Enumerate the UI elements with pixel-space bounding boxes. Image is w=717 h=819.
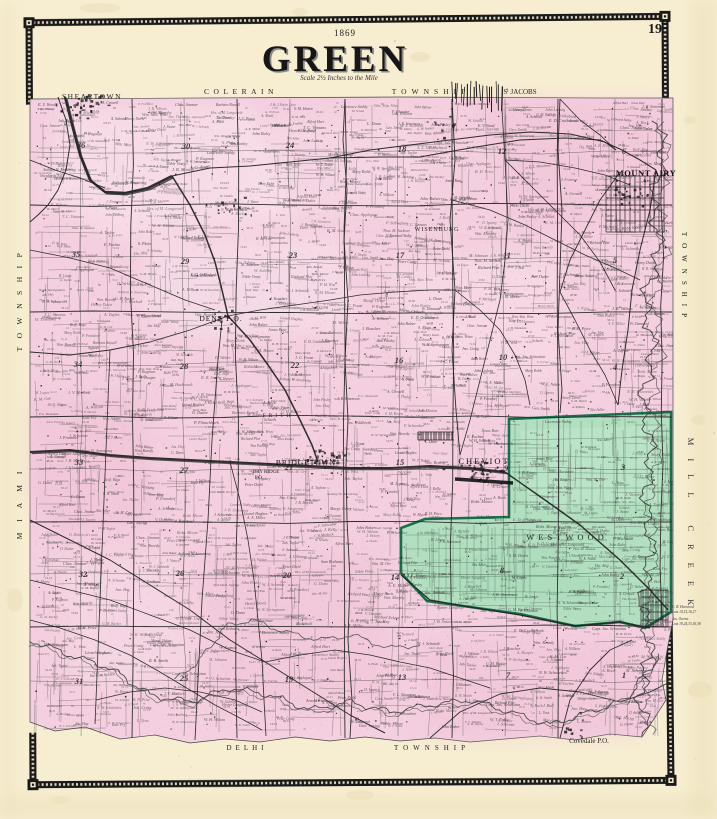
svg-text:54.91: 54.91 [109,273,116,277]
svg-text:91.41: 91.41 [364,451,372,455]
svg-text:54.91: 54.91 [379,621,386,624]
svg-text:L. Dunn: L. Dunn [411,482,426,487]
svg-text:170: 170 [462,498,467,501]
svg-text:Leonard Staby: Leonard Staby [489,362,508,366]
svg-text:28.80: 28.80 [437,223,444,226]
svg-text:58.10: 58.10 [162,238,169,241]
svg-text:Peter Craig: Peter Craig [397,260,417,264]
svg-text:29.13: 29.13 [539,382,546,385]
svg-text:160: 160 [338,411,343,415]
svg-text:Peter Diehl: Peter Diehl [282,565,301,569]
svg-text:95.14: 95.14 [498,390,506,394]
svg-text:25.14: 25.14 [262,289,269,292]
svg-text:160: 160 [397,635,402,638]
svg-text:Peter Craig: Peter Craig [109,265,129,269]
svg-text:Peter Diehl: Peter Diehl [342,177,357,181]
svg-text:Nible Vinny: Nible Vinny [241,274,261,279]
svg-text:19.08: 19.08 [454,160,461,163]
svg-text:25.14: 25.14 [662,312,669,316]
svg-text:160: 160 [217,119,222,123]
svg-text:74.62: 74.62 [71,611,78,615]
svg-text:80: 80 [41,639,45,643]
svg-text:R. B. Smith: R. B. Smith [102,492,119,496]
svg-text:170: 170 [439,323,444,326]
svg-text:Wm. Beardy: Wm. Beardy [390,431,410,436]
svg-text:Jonas Bute: Jonas Bute [481,428,499,433]
svg-text:G. Dano: G. Dano [231,610,245,615]
svg-text:Nta Adler: Nta Adler [504,635,518,639]
svg-text:18.19: 18.19 [213,584,220,587]
svg-text:66.31: 66.31 [363,338,370,341]
svg-text:V. Osnama: V. Osnama [365,612,381,616]
svg-text:47.50: 47.50 [40,112,47,115]
svg-text:Nta Adler: Nta Adler [471,563,487,567]
svg-text:44.10: 44.10 [323,636,330,640]
svg-text:J. B. Simonson: J. B. Simonson [224,507,249,513]
svg-text:31.75: 31.75 [565,704,572,708]
svg-text:Richard Plar: Richard Plar [240,437,261,441]
svg-text:74.62: 74.62 [384,475,391,478]
svg-text:103.25: 103.25 [103,122,111,125]
svg-text:54.91: 54.91 [45,668,53,672]
svg-text:27: 27 [179,465,189,475]
svg-text:160: 160 [479,677,484,680]
svg-text:19.08: 19.08 [172,693,179,696]
svg-text:18.19: 18.19 [317,312,325,316]
svg-text:23: 23 [288,250,298,260]
svg-text:74.62: 74.62 [565,491,573,495]
svg-text:29: 29 [180,256,190,266]
svg-text:Wm. Adams: Wm. Adams [103,417,121,421]
svg-text:E. D. Cruikshank: E. D. Cruikshank [513,628,544,633]
svg-text:G. M. Barker: G. M. Barker [508,608,529,612]
svg-text:COLERAIN: COLERAIN [204,87,278,96]
svg-text:120: 120 [627,588,632,591]
svg-text:29.13: 29.13 [141,687,148,690]
svg-text:34.30: 34.30 [354,658,362,662]
svg-text:103.25: 103.25 [488,235,497,239]
svg-text:74.62: 74.62 [387,530,395,534]
svg-text:63: 63 [292,377,296,381]
svg-text:58.10: 58.10 [358,643,365,646]
svg-text:F. L. Showman: F. L. Showman [357,394,378,398]
svg-text:S. Plain: S. Plain [628,136,639,140]
svg-text:W. Timmand: W. Timmand [173,518,195,524]
svg-text:19.08: 19.08 [204,308,211,312]
svg-text:J. Victory: J. Victory [454,528,470,534]
svg-text:L. Voss: L. Voss [538,711,550,715]
svg-text:103.25: 103.25 [400,482,409,486]
svg-text:84: 84 [151,148,155,152]
svg-text:29.13: 29.13 [126,132,133,135]
svg-text:Nta Adler: Nta Adler [223,567,237,571]
svg-text:Jos. Wildbreth: Jos. Wildbreth [128,176,146,180]
svg-text:D. Weber: D. Weber [628,710,645,715]
svg-text:18.19: 18.19 [329,424,337,428]
svg-text:Peter Diehl: Peter Diehl [432,451,448,456]
svg-text:58.10: 58.10 [385,263,392,267]
svg-text:E. D. Cruikshank: E. D. Cruikshank [410,315,439,320]
svg-text:58.10: 58.10 [95,558,102,561]
svg-text:160: 160 [503,685,508,689]
svg-text:47.50: 47.50 [425,563,432,566]
svg-text:W. Cordes: W. Cordes [212,485,226,489]
svg-text:54.91: 54.91 [92,479,99,483]
svg-text:F. L. Showman: F. L. Showman [38,412,59,416]
svg-text:80: 80 [589,505,593,509]
svg-text:Lionel Hughes: Lionel Hughes [327,656,347,660]
svg-text:28.80: 28.80 [368,600,376,604]
svg-text:S. M. Hearn: S. M. Hearn [46,360,63,364]
svg-text:A. Taylor: A. Taylor [59,278,73,282]
svg-text:Chas. Jimmar: Chas. Jimmar [467,324,488,328]
svg-text:38.51: 38.51 [76,714,83,718]
svg-text:P. M. Wist: P. M. Wist [340,469,359,474]
svg-text:J. Victory: J. Victory [205,425,217,429]
svg-text:160: 160 [331,564,336,568]
svg-text:John Mortimer: John Mortimer [202,301,221,305]
svg-text:Schash: Schash [532,339,543,343]
svg-text:29.13: 29.13 [407,282,414,286]
svg-text:120: 120 [467,227,472,231]
svg-text:WESTWOOD: WESTWOOD [526,532,608,542]
svg-text:120: 120 [416,318,421,322]
svg-text:S. Plain: S. Plain [576,691,589,696]
svg-text:25.14: 25.14 [381,337,389,341]
svg-text:44.10: 44.10 [509,416,517,420]
svg-text:J. Ulihman: J. Ulihman [151,613,165,617]
svg-text:103.25: 103.25 [544,291,553,295]
svg-text:W. J. Schmidt: W. J. Schmidt [149,565,170,569]
svg-text:Tim Pardey: Tim Pardey [622,597,638,601]
svg-text:N. W. Schworties: N. W. Schworties [626,390,654,394]
svg-text:47.50: 47.50 [202,631,209,635]
svg-text:P.O.: P.O. [255,476,263,481]
svg-text:40: 40 [375,343,379,347]
svg-text:25.14: 25.14 [532,564,539,568]
svg-text:1: 1 [622,670,626,680]
svg-text:19: 19 [648,22,662,37]
svg-text:74.62: 74.62 [633,196,640,199]
svg-text:A. Taylor: A. Taylor [47,591,62,595]
svg-text:Hrs. of M. Longworth: Hrs. of M. Longworth [146,206,184,211]
svg-text:M. Lopes: M. Lopes [456,263,469,267]
svg-text:J. C. Foust: J. C. Foust [603,559,620,564]
svg-text:80: 80 [283,107,287,111]
svg-text:38.51: 38.51 [237,692,244,696]
svg-text:19.08: 19.08 [581,513,589,517]
svg-text:18.19: 18.19 [633,476,640,479]
svg-text:R. B. Smith: R. B. Smith [56,244,71,249]
svg-text:J. V. Morlock: J. V. Morlock [139,568,159,573]
svg-text:12: 12 [232,417,236,421]
svg-text:E. V. Wood: E. V. Wood [239,118,255,122]
svg-text:28.80: 28.80 [334,147,341,151]
svg-text:John Raley: John Raley [252,131,270,136]
svg-text:D. Weber: D. Weber [655,409,672,414]
svg-text:58.10: 58.10 [591,176,598,179]
svg-text:28.80: 28.80 [314,360,322,364]
svg-text:J. B. Simonson: J. B. Simonson [272,388,291,392]
svg-text:48.44: 48.44 [57,459,64,463]
svg-text:John Balser: John Balser [155,365,172,369]
svg-text:W. Schilby: W. Schilby [252,645,266,649]
svg-text:Jonas Bute: Jonas Bute [413,330,428,334]
svg-text:F. Schwaber: F. Schwaber [92,187,112,191]
svg-text:A. Hopke: A. Hopke [633,374,646,378]
svg-text:48.44: 48.44 [199,369,207,373]
svg-text:R. B. Smith: R. B. Smith [454,694,472,698]
svg-text:J. B. Morton: J. B. Morton [432,677,448,681]
svg-text:47.50: 47.50 [440,653,447,657]
svg-text:40: 40 [568,331,572,335]
svg-text:E. Fuchta: E. Fuchta [263,679,278,683]
svg-text:34.30: 34.30 [320,414,327,417]
svg-text:Kate Fry: Kate Fry [111,723,126,727]
svg-text:58.10: 58.10 [592,632,600,636]
svg-text:91.41: 91.41 [524,210,531,214]
svg-text:120: 120 [235,457,240,461]
svg-text:28.80: 28.80 [632,654,639,658]
svg-text:W. H. Wilson: W. H. Wilson [152,223,174,228]
svg-text:W. T. Noble: W. T. Noble [447,427,465,431]
svg-text:91.41: 91.41 [624,566,631,569]
svg-text:48.44: 48.44 [507,266,514,269]
svg-text:W. E. Noble: W. E. Noble [174,234,189,239]
svg-text:W. Cordes: W. Cordes [333,650,349,654]
svg-text:34.30: 34.30 [583,240,590,244]
svg-text:34.30: 34.30 [252,210,259,213]
svg-text:J. Stone: J. Stone [59,101,70,105]
svg-text:28.80: 28.80 [63,609,70,612]
svg-text:N. W. Schworties: N. W. Schworties [220,208,247,212]
svg-text:E. V. Wood: E. V. Wood [512,488,527,492]
svg-text:31.75: 31.75 [636,180,644,184]
svg-text:A. Schunke: A. Schunke [157,507,176,511]
svg-text:Wm. Stin. Wnn: Wm. Stin. Wnn [617,230,636,234]
svg-text:S. Plain: S. Plain [438,427,449,431]
svg-text:170: 170 [35,409,40,412]
svg-text:103.25: 103.25 [188,551,196,554]
svg-text:80: 80 [67,469,71,473]
svg-text:M. Johnson: M. Johnson [114,698,130,702]
svg-text:103.25: 103.25 [227,331,236,335]
svg-text:48.44: 48.44 [241,637,248,640]
svg-text:A. E. Miller: A. E. Miller [343,623,363,628]
svg-text:1869: 1869 [334,28,356,38]
svg-text:58.10: 58.10 [416,492,423,495]
svg-text:Mary Robb: Mary Robb [294,351,311,355]
svg-text:Jonas Bute: Jonas Bute [577,135,594,139]
svg-text:W. Schilby: W. Schilby [80,254,96,258]
svg-text:58.10: 58.10 [584,631,591,634]
svg-text:66.31: 66.31 [644,645,652,649]
svg-text:66.31: 66.31 [253,721,261,725]
svg-text:170: 170 [453,199,458,202]
svg-text:91.41: 91.41 [604,305,611,308]
svg-text:120: 120 [308,668,313,672]
svg-text:38.51: 38.51 [77,669,84,673]
svg-text:J. Thaler: J. Thaler [83,656,96,660]
svg-text:Wm. M. Orr: Wm. M. Orr [586,478,606,482]
svg-text:DENT P.O.: DENT P.O. [199,314,242,323]
svg-text:34.30: 34.30 [639,516,646,519]
svg-text:31.75: 31.75 [565,142,572,146]
svg-text:95.14: 95.14 [276,539,284,543]
svg-text:44.10: 44.10 [44,316,51,319]
svg-text:Chas. Applegate: Chas. Applegate [453,411,475,415]
svg-text:47.50: 47.50 [231,143,238,146]
svg-text:54.91: 54.91 [309,213,316,216]
svg-text:25.14: 25.14 [617,283,624,286]
svg-text:48.44: 48.44 [483,438,491,442]
svg-text:19.08: 19.08 [102,157,109,160]
svg-text:18.19: 18.19 [445,359,452,362]
svg-text:J. Vance: J. Vance [166,558,180,563]
svg-text:J. Victory: J. Victory [546,592,559,596]
svg-text:Kate Fry: Kate Fry [37,652,50,656]
svg-text:P. Frondorf: P. Frondorf [365,204,385,209]
svg-text:L. Dunn: L. Dunn [243,606,255,610]
svg-text:58.10: 58.10 [62,625,69,628]
svg-text:4: 4 [612,362,617,372]
svg-text:Jno. Hay: Jno. Hay [574,340,589,345]
svg-text:12: 12 [384,361,388,365]
svg-text:A. Taylor: A. Taylor [246,684,260,688]
svg-text:160: 160 [517,359,522,363]
svg-text:66.31: 66.31 [526,662,534,666]
svg-text:74.62: 74.62 [63,372,71,376]
svg-text:Alfred Hart: Alfred Hart [280,652,302,657]
svg-text:48.44: 48.44 [306,445,313,448]
svg-text:S. Plain: S. Plain [238,628,249,632]
svg-text:Michael Eckner: Michael Eckner [327,152,354,157]
svg-text:91.41: 91.41 [198,498,205,502]
svg-text:M. Hackworth: M. Hackworth [649,588,669,592]
svg-text:28.80: 28.80 [460,114,467,118]
svg-text:W. Myers: W. Myers [570,212,583,216]
svg-text:38.51: 38.51 [180,615,187,619]
svg-text:58.10: 58.10 [199,651,206,655]
svg-text:P. Frondorf: P. Frondorf [81,334,100,338]
svg-text:J. Victory: J. Victory [366,534,380,538]
svg-text:28.80: 28.80 [280,708,287,711]
svg-text:160: 160 [297,676,302,680]
svg-text:54.91: 54.91 [73,555,81,559]
svg-text:W. Timmand: W. Timmand [422,307,440,311]
svg-text:54.91: 54.91 [325,477,333,481]
svg-text:MIAMI: MIAMI [15,461,24,540]
svg-text:R. B. Smith: R. B. Smith [535,696,552,700]
svg-text:A. Hopke: A. Hopke [99,701,112,705]
svg-text:95.14: 95.14 [630,456,638,460]
svg-text:Wm. Murphy: Wm. Murphy [254,503,272,507]
svg-text:38.51: 38.51 [184,501,191,504]
svg-text:MOUNT AIRY: MOUNT AIRY [616,168,677,178]
svg-text:74.62: 74.62 [469,342,476,346]
svg-text:120: 120 [357,586,362,590]
svg-text:32: 32 [78,569,88,579]
svg-text:B. H. Price: B. H. Price [100,608,115,612]
svg-text:J. B. Morton: J. B. Morton [81,410,97,414]
svg-text:47.50: 47.50 [364,250,372,254]
svg-text:G. Dano: G. Dano [177,488,189,492]
svg-text:120: 120 [404,239,409,243]
svg-text:P. Flinnchbark: P. Flinnchbark [455,315,476,319]
svg-text:Danl. Jaycigg: Danl. Jaycigg [358,724,380,728]
svg-text:95.14: 95.14 [602,390,610,394]
svg-text:44.10: 44.10 [344,359,351,362]
svg-text:160: 160 [524,517,529,521]
svg-text:95.14: 95.14 [570,479,577,482]
svg-text:40: 40 [372,259,376,263]
svg-text:84: 84 [71,704,75,708]
svg-text:38.51: 38.51 [246,226,254,230]
svg-text:25.14: 25.14 [622,183,629,187]
svg-text:31.75: 31.75 [234,598,241,601]
svg-text:47.50: 47.50 [251,351,258,355]
svg-text:Rolf. Bigs: Rolf. Bigs [557,345,571,349]
svg-text:48.44: 48.44 [343,229,350,233]
svg-text:J. Victory: J. Victory [594,337,608,341]
svg-text:19.08: 19.08 [246,597,253,601]
svg-text:MILL CREEK: MILL CREEK [686,438,696,618]
svg-text:Mary Robb: Mary Robb [382,513,401,517]
svg-text:D. Weber: D. Weber [259,338,273,342]
svg-text:A. Schmidt: A. Schmidt [133,209,151,213]
svg-text:29.13: 29.13 [519,706,526,709]
svg-text:Chas. Miller: Chas. Miller [546,325,564,329]
svg-text:Jno. Hay: Jno. Hay [315,403,330,408]
svg-text:John Pasley: John Pasley [46,420,63,424]
svg-text:120: 120 [169,608,174,612]
svg-text:Tim Pardey: Tim Pardey [429,175,445,179]
svg-text:Chas. Applegate: Chas. Applegate [183,115,206,119]
svg-text:Barbara Russell: Barbara Russell [216,103,240,107]
svg-text:120: 120 [504,523,509,527]
svg-text:Peter Diehl: Peter Diehl [432,247,450,251]
svg-text:84: 84 [607,118,611,122]
svg-text:Chas. Miller: Chas. Miller [389,138,406,142]
svg-text:91.41: 91.41 [388,605,396,609]
svg-text:91.41: 91.41 [249,660,256,664]
svg-text:120: 120 [532,459,537,463]
svg-text:58.10: 58.10 [311,257,319,261]
svg-text:J. Boucher: J. Boucher [503,646,521,651]
svg-text:Margt. Ocker: Margt. Ocker [329,506,352,511]
svg-text:W. W. Springmann: W. W. Springmann [257,608,285,612]
svg-text:N. W. Schworties: N. W. Schworties [171,720,196,724]
svg-text:170: 170 [504,494,509,497]
svg-text:John Baker: John Baker [330,668,345,672]
svg-text:J. V. Morlock: J. V. Morlock [121,299,142,304]
svg-text:Jno. Hay: Jno. Hay [408,249,421,253]
svg-text:Geo. Smith: Geo. Smith [366,182,383,186]
svg-text:Schash: Schash [550,361,560,366]
svg-text:38.51: 38.51 [524,405,531,409]
svg-text:29.13: 29.13 [354,677,361,681]
svg-text:19.08: 19.08 [218,281,225,285]
svg-text:Anthony W. Armstrong: Anthony W. Armstrong [45,541,81,545]
svg-text:91.41: 91.41 [532,629,539,632]
svg-text:E. D. Cruikshank: E. D. Cruikshank [137,408,165,412]
svg-text:95.14: 95.14 [432,341,439,344]
svg-text:Mary Robb: Mary Robb [63,331,81,335]
svg-text:31.75: 31.75 [148,300,155,303]
svg-text:18.19: 18.19 [451,626,459,630]
svg-text:18.19: 18.19 [376,419,384,423]
svg-text:95.14: 95.14 [61,338,68,341]
